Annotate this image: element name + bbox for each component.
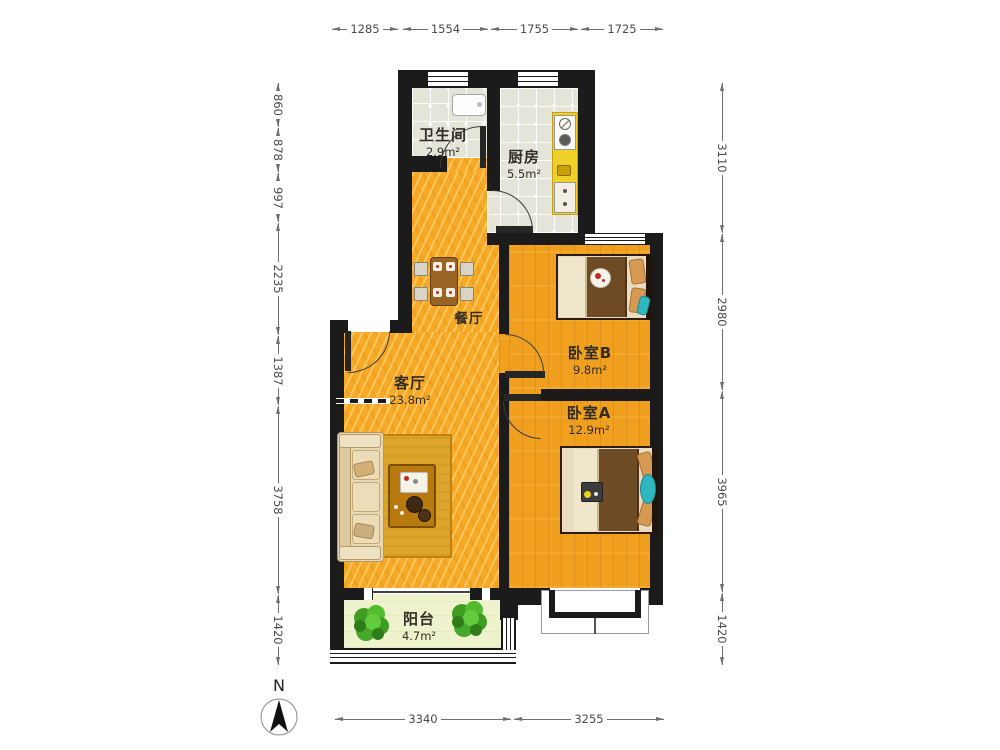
dining-chair [460, 287, 474, 301]
bedroom-b-window [585, 234, 645, 244]
bed-b-decor-dot [602, 279, 605, 282]
dim-value: 1420 [715, 614, 729, 643]
wall [541, 389, 663, 401]
dim-right-2: 2980 [715, 234, 729, 390]
tray-cup [404, 476, 409, 481]
dim-value: 1755 [517, 22, 552, 36]
balcony-name: 阳台 [388, 610, 450, 629]
bed-a-teal-stool [640, 474, 656, 504]
kitchen-label: 厨房 5.5m² [492, 148, 556, 181]
wall [499, 233, 509, 334]
kitchen-sink [554, 182, 576, 213]
bathroom-area: 2.9m² [405, 145, 481, 159]
dim-value: 997 [271, 187, 285, 209]
bed-a-blanket [599, 449, 639, 531]
bedroom-b-area: 9.8m² [558, 363, 622, 377]
dim-left-6: 3758 [271, 406, 285, 594]
plate-dot [449, 291, 452, 294]
dim-left-3: 997 [271, 173, 285, 222]
dim-value: 860 [271, 94, 285, 116]
sink-drain [563, 189, 567, 193]
dim-right-4: 1420 [715, 593, 729, 665]
teapot [418, 509, 431, 522]
plant-icon [448, 598, 490, 642]
dining-chair [414, 287, 428, 301]
bed-b-blanket [587, 257, 627, 317]
bay-window-mullion [594, 618, 596, 634]
bathroom-label: 卫生间 2.9m² [405, 126, 481, 159]
dim-value: 2980 [715, 297, 729, 326]
living-name: 客厅 [378, 374, 442, 393]
balcony-area: 4.7m² [388, 629, 450, 643]
dim-left-2: 878 [271, 128, 285, 172]
dim-value: 2235 [271, 264, 285, 293]
bed-a-tray-dot [584, 491, 591, 498]
plate-dot [436, 291, 439, 294]
kitchen-utensil [557, 165, 571, 176]
plate-dot [449, 265, 452, 268]
dining-name: 餐厅 [443, 311, 495, 328]
cooktop-burner [559, 118, 571, 130]
dim-value: 3340 [405, 712, 440, 726]
dim-bottom-1: 3340 [335, 712, 511, 726]
sofa-armrest [339, 546, 381, 560]
balcony-side-window [501, 618, 516, 650]
dim-value: 1420 [271, 615, 285, 644]
dim-left-4: 2235 [271, 223, 285, 335]
washer-knob [477, 102, 482, 107]
bedroom-a-name: 卧室A [556, 404, 622, 423]
dim-value: 3965 [715, 477, 729, 506]
dim-value: 3110 [715, 143, 729, 172]
balcony-sliding-door-panel [363, 588, 373, 600]
kitchen-area: 5.5m² [492, 167, 556, 181]
north-arrow-icon [258, 696, 300, 738]
dim-left-7: 1420 [271, 595, 285, 665]
dining-chair [460, 262, 474, 276]
dining-label: 餐厅 [443, 311, 495, 328]
dim-bottom-2: 3255 [514, 712, 664, 726]
dining-floor [412, 154, 499, 334]
bed-b-folded-duvet [559, 257, 587, 317]
dim-left-5: 1387 [271, 336, 285, 405]
balcony-label: 阳台 4.7m² [388, 610, 450, 643]
tray-cup [413, 479, 418, 484]
bathroom-window [428, 72, 468, 86]
dim-value: 3758 [271, 485, 285, 514]
dim-value: 1285 [347, 22, 382, 36]
living-area: 23.8m² [378, 393, 442, 407]
table-dot [394, 505, 398, 509]
plate-dot [436, 265, 439, 268]
dim-right-1: 3110 [715, 83, 729, 233]
sofa-armrest [339, 434, 381, 448]
sofa-cushion [352, 482, 380, 512]
living-label: 客厅 23.8m² [378, 374, 442, 407]
sink-drain [563, 202, 567, 206]
bed-b-decor-plate [590, 268, 611, 288]
bed-b-decor-dot [595, 273, 601, 279]
balcony-door-track [373, 591, 470, 593]
dim-value: 1725 [604, 22, 639, 36]
dim-left-1: 860 [271, 83, 285, 127]
dim-value: 1554 [428, 22, 463, 36]
bedroom-a-door-leaf [504, 394, 541, 401]
wall [330, 588, 363, 600]
dim-right-3: 3965 [715, 391, 729, 592]
bedroom-b-label: 卧室B 9.8m² [558, 344, 622, 377]
wall [390, 320, 412, 333]
bedroom-a-label: 卧室A 12.9m² [556, 404, 622, 437]
plant-icon [350, 602, 392, 646]
dining-chair [414, 262, 428, 276]
wall [398, 70, 412, 332]
table-dot [400, 511, 404, 515]
compass: N [258, 676, 300, 742]
dim-value: 1387 [271, 356, 285, 385]
kitchen-window [518, 72, 558, 86]
dim-value: 878 [271, 139, 285, 161]
bedroom-a-area: 12.9m² [556, 423, 622, 437]
kitchen-name: 厨房 [492, 148, 556, 167]
cooktop-burner [559, 134, 571, 146]
balcony-window [330, 648, 516, 664]
dim-top-4: 1725 [581, 22, 663, 36]
dim-top-2: 1554 [403, 22, 488, 36]
compass-north-label: N [258, 676, 300, 695]
sofa-back [339, 436, 351, 558]
dim-top-3: 1755 [491, 22, 578, 36]
dim-top-1: 1285 [332, 22, 398, 36]
bathroom-name: 卫生间 [405, 126, 481, 145]
bed-a-tray-dot [594, 492, 598, 496]
floor-plan: 卫生间 2.9m² 厨房 5.5m² 餐厅 卧室B 9.8m² 客厅 23.8m… [0, 0, 1000, 750]
dim-value: 3255 [571, 712, 606, 726]
bedroom-b-name: 卧室B [558, 344, 622, 363]
wall [578, 70, 595, 245]
